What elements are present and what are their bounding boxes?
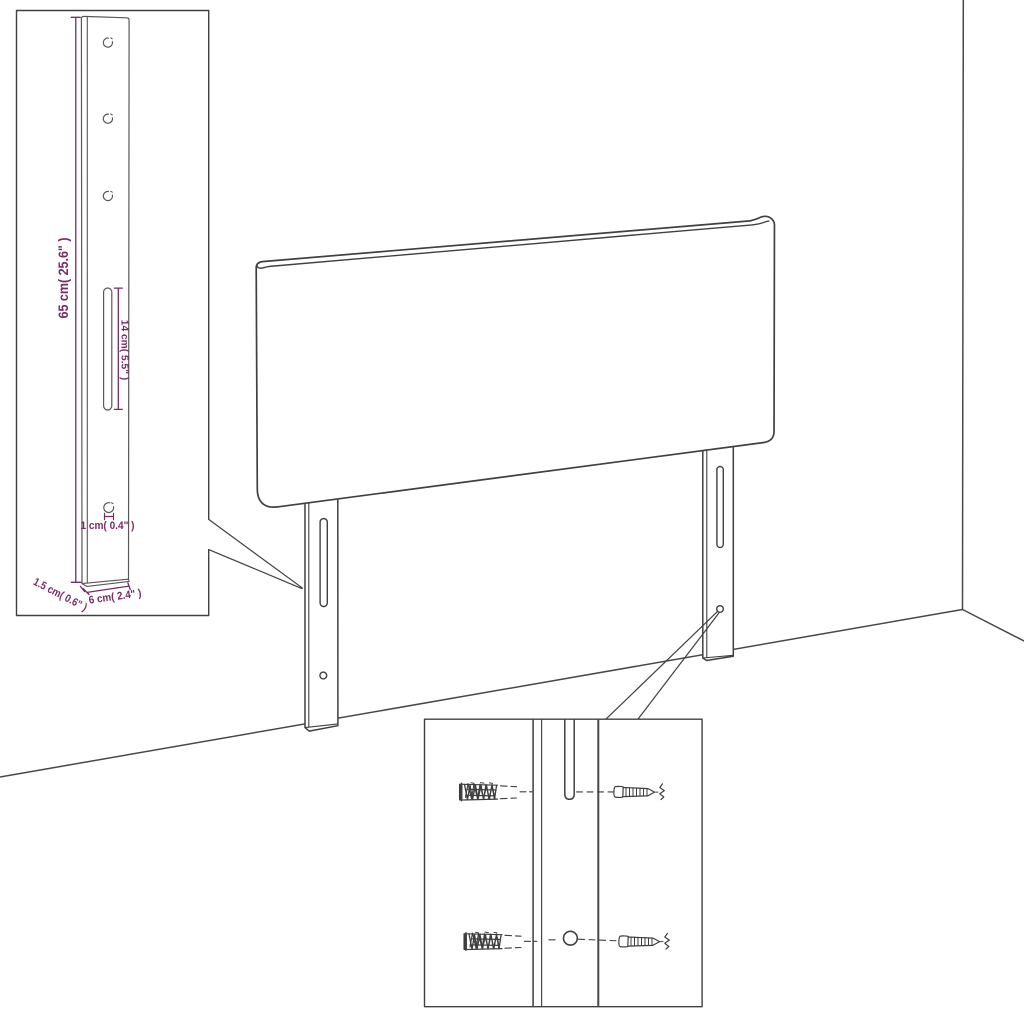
- svg-text:65 cm( 25.6" ): 65 cm( 25.6" ): [56, 238, 71, 319]
- svg-text:1 cm( 0.4" ): 1 cm( 0.4" ): [81, 520, 135, 532]
- svg-text:14 cm( 5.5" ): 14 cm( 5.5" ): [119, 320, 130, 381]
